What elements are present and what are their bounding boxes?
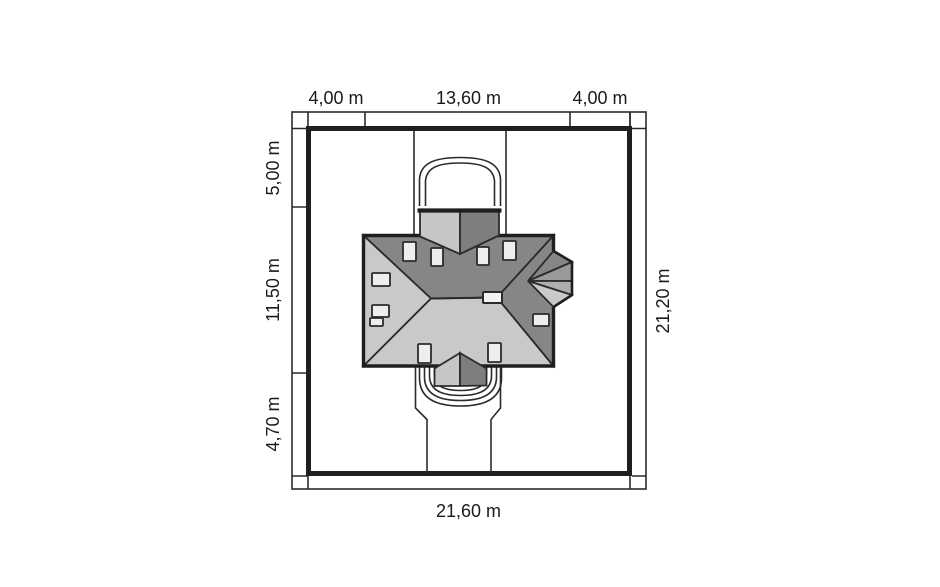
dimension-band-ticks-left [292,129,308,477]
skylight-window [372,273,390,286]
skylight-window [418,344,431,363]
skylight-window [488,343,501,362]
dim-label-top-right: 4,00 m [572,88,627,108]
site-plan-page: 4,00 m 13,60 m 4,00 m 5,00 m 11,50 m 4,7… [0,0,940,587]
dim-label-top-center: 13,60 m [436,88,501,108]
skylight-window [403,242,416,261]
dim-label-top-left: 4,00 m [308,88,363,108]
skylight-window [503,241,516,260]
dim-label-right: 21,20 m [653,268,673,333]
skylight-window [372,305,389,317]
dim-label-left-middle: 11,50 m [263,258,283,322]
skylight-window [370,318,383,326]
dim-label-bottom: 21,60 m [436,501,501,521]
skylight-window [477,247,489,265]
skylight-window [431,248,443,266]
dimension-band-ticks-right [630,112,646,476]
skylight-window [533,314,549,326]
chimney [483,292,502,303]
house-roof [364,236,554,367]
dim-label-left-upper: 5,00 m [263,140,283,195]
dim-label-left-lower: 4,70 m [263,396,283,451]
dimension-band-ticks-bottom [308,476,630,489]
site-plan-drawing: 4,00 m 13,60 m 4,00 m 5,00 m 11,50 m 4,7… [0,0,940,587]
